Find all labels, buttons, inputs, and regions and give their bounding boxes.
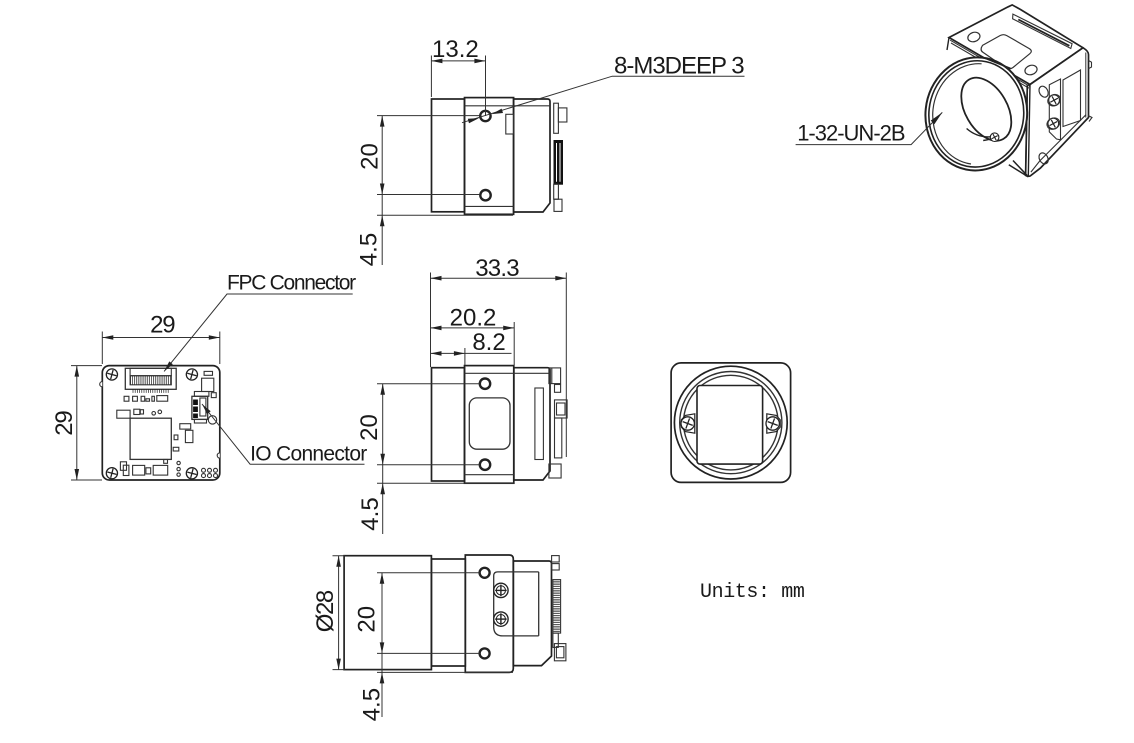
svg-text:13.2: 13.2 [432, 36, 479, 63]
svg-text:IO Connector: IO Connector [250, 443, 367, 466]
svg-text:4.5: 4.5 [359, 688, 386, 721]
svg-text:20: 20 [356, 414, 383, 441]
svg-text:20: 20 [354, 606, 381, 633]
svg-text:29: 29 [150, 311, 175, 338]
svg-text:1-32-UN-2B: 1-32-UN-2B [797, 121, 905, 146]
svg-text:4.5: 4.5 [355, 233, 382, 266]
svg-text:8-M3DEEP 3: 8-M3DEEP 3 [614, 53, 744, 80]
svg-text:FPC Connector: FPC Connector [227, 272, 356, 295]
svg-text:29: 29 [51, 411, 78, 436]
svg-text:Units: mm: Units: mm [700, 581, 804, 604]
svg-text:4.5: 4.5 [357, 497, 384, 530]
svg-text:Ø28: Ø28 [312, 590, 339, 632]
svg-text:20: 20 [357, 143, 384, 170]
svg-text:8.2: 8.2 [472, 329, 505, 356]
